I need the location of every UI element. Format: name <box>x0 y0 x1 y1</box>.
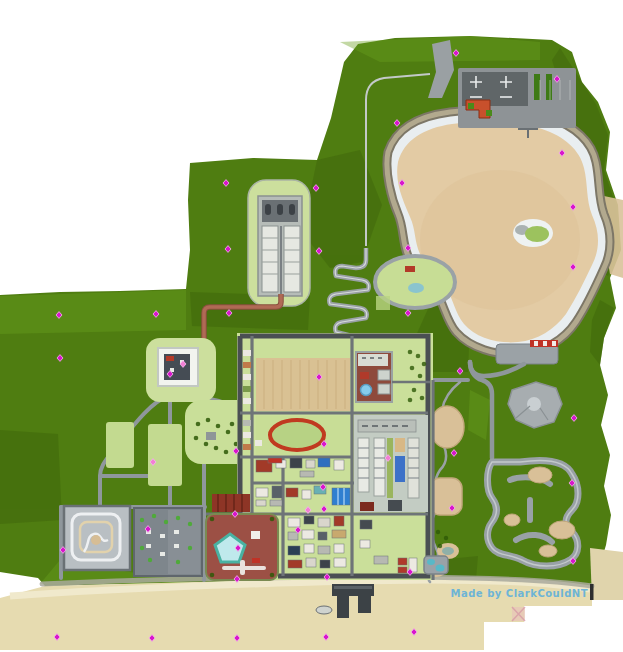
game-map-image: Made by ClarkCouldNT <box>0 0 623 652</box>
hedge <box>546 74 552 100</box>
beach-towel <box>512 607 525 621</box>
boat <box>316 606 332 614</box>
map-canvas: Made by ClarkCouldNT <box>0 0 623 652</box>
watermark-cursor <box>590 584 594 600</box>
apartment-blocks <box>354 415 428 512</box>
farm-field <box>256 358 350 411</box>
rowhouses <box>212 494 250 512</box>
skate-pool <box>424 556 448 574</box>
lake-island <box>513 219 553 247</box>
swimming-pool <box>332 488 350 505</box>
walled-compound <box>146 338 216 402</box>
credit-text: Made by ClarkCouldNT <box>451 588 588 599</box>
entry-arches <box>265 204 295 215</box>
prison-compound <box>248 180 310 306</box>
pond-compound <box>375 256 455 310</box>
dam <box>496 340 558 364</box>
campground-lot <box>134 508 202 576</box>
school-track <box>256 416 350 455</box>
southeast-dry-slope <box>590 548 623 600</box>
city <box>206 333 448 580</box>
hedge <box>534 74 540 100</box>
kart-track-lot <box>64 506 130 570</box>
stadium-plaza <box>206 514 278 580</box>
